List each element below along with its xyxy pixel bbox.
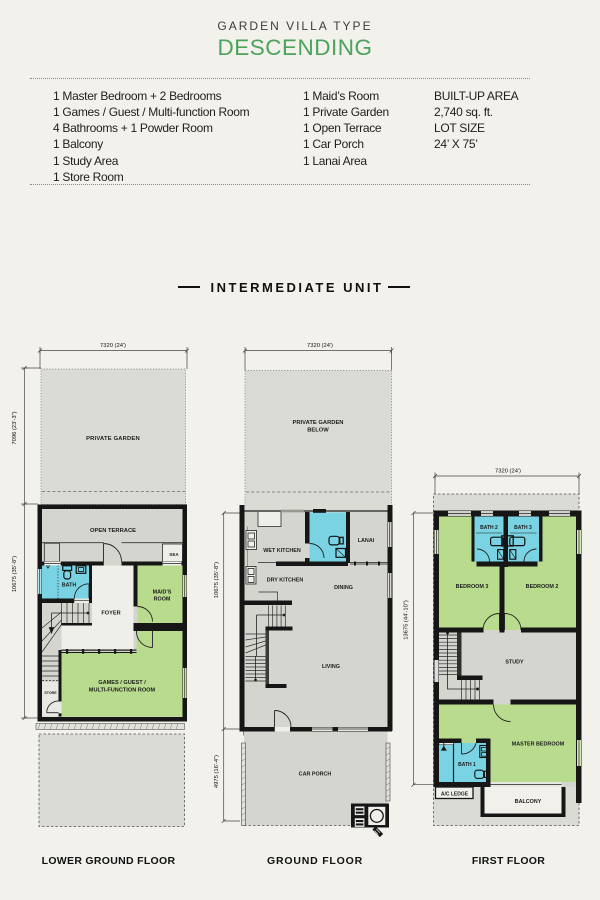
svg-text:LIVING: LIVING	[322, 664, 340, 670]
svg-text:CAR PORCH: CAR PORCH	[299, 772, 332, 778]
svg-text:PRIVATE GARDEN: PRIVATE GARDEN	[293, 420, 344, 426]
svg-text:BATH 2: BATH 2	[480, 525, 498, 531]
svg-text:MULTI-FUNCTION ROOM: MULTI-FUNCTION ROOM	[89, 688, 156, 694]
svg-text:BALCONY: BALCONY	[515, 799, 542, 805]
svg-text:STUDY: STUDY	[505, 660, 524, 666]
svg-text:GROUND FLOOR: GROUND FLOOR	[267, 855, 363, 867]
svg-text:4975 (16'-4"): 4975 (16'-4")	[214, 755, 220, 788]
svg-text:FOYER: FOYER	[101, 611, 120, 617]
svg-text:DINING: DINING	[334, 585, 353, 591]
svg-text:7320 (24'): 7320 (24')	[100, 343, 126, 349]
svg-text:7096 (23'-3"): 7096 (23'-3")	[12, 411, 18, 444]
svg-text:MAID'S: MAID'S	[153, 590, 172, 596]
svg-text:MASTER BEDROOM: MASTER BEDROOM	[512, 742, 565, 748]
svg-text:PRIVATE GARDEN: PRIVATE GARDEN	[86, 436, 140, 442]
svg-text:BELOW: BELOW	[307, 428, 329, 434]
svg-text:WET KITCHEN: WET KITCHEN	[263, 548, 301, 554]
svg-text:10675 (35'-8"): 10675 (35'-8")	[214, 562, 220, 598]
svg-text:BEDROOM 3: BEDROOM 3	[456, 584, 489, 590]
svg-text:STORE: STORE	[44, 691, 57, 695]
svg-text:BATH 1: BATH 1	[458, 762, 476, 768]
svg-text:13675 (44'-10"): 13675 (44'-10")	[404, 600, 410, 640]
svg-text:BATH 3: BATH 3	[514, 525, 532, 531]
svg-text:SEA: SEA	[169, 552, 179, 557]
svg-text:OPEN TERRACE: OPEN TERRACE	[90, 528, 136, 534]
svg-text:BATH: BATH	[62, 583, 77, 589]
svg-text:DRY KITCHEN: DRY KITCHEN	[267, 578, 304, 584]
svg-text:LOWER GROUND FLOOR: LOWER GROUND FLOOR	[42, 855, 176, 867]
svg-text:GAMES / GUEST /: GAMES / GUEST /	[98, 680, 146, 686]
svg-text:A/C LEDGE: A/C LEDGE	[441, 792, 469, 798]
svg-text:10675 (35'-8"): 10675 (35'-8")	[12, 556, 18, 592]
svg-text:BEDROOM 2: BEDROOM 2	[526, 584, 559, 590]
svg-text:FIRST FLOOR: FIRST FLOOR	[472, 855, 545, 867]
svg-text:7320 (24'): 7320 (24')	[307, 343, 333, 349]
svg-text:LANAI: LANAI	[358, 538, 375, 544]
svg-text:ROOM: ROOM	[154, 597, 171, 603]
svg-text:7320 (24'): 7320 (24')	[495, 469, 521, 475]
